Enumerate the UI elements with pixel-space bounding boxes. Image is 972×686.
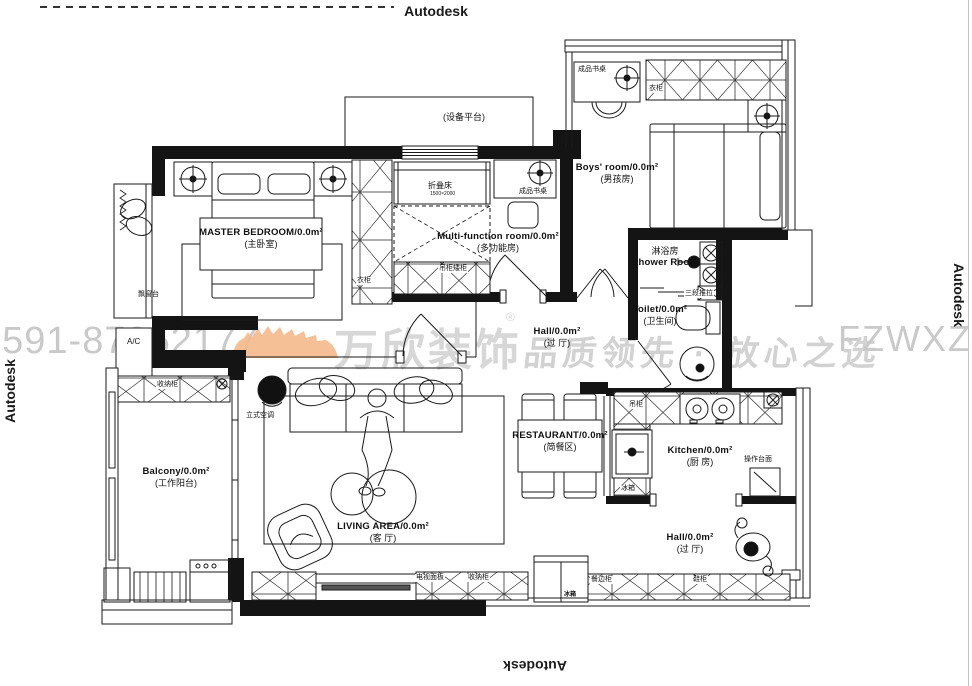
storage-balcony-label: 收纳柜 bbox=[156, 381, 179, 389]
folding-bed-label: 折叠床 bbox=[428, 182, 452, 191]
work-counter-label: 操作台面 bbox=[744, 456, 772, 464]
low-cabinet-label: 吊柜矮柜 bbox=[438, 265, 468, 273]
sideboard-label: 餐边柜 bbox=[590, 576, 613, 584]
floorplan-page: 0591-87952177 万欣装饰 ® 品质领先 · 放心之选 FZWXZS.… bbox=[0, 0, 972, 686]
wardrobe-master-label: 衣柜 bbox=[356, 277, 372, 285]
room-label-living-area: LIVING AREA/0.0m²(客 厅) bbox=[337, 521, 429, 544]
revision-dash-line bbox=[40, 6, 394, 8]
autodesk-watermark-bottom: Autodesk bbox=[499, 658, 571, 674]
desk-boys-label: 成品书桌 bbox=[577, 66, 607, 74]
floorplan-drawing bbox=[0, 0, 972, 686]
room-label-shower-room: 淋浴房Shower Room bbox=[632, 246, 698, 269]
sliding-door-label: 三段推拉 bbox=[684, 290, 714, 298]
room-label-restaurant: RESTAURANT/0.0m²(简餐区) bbox=[512, 430, 607, 453]
standing-ac-label: 立式空调 bbox=[246, 412, 274, 420]
desk-multi-label: 成品书桌 bbox=[518, 188, 548, 196]
tv-panel-label: 电视面板 bbox=[415, 574, 445, 582]
shoe-cabinet-label: 鞋柜 bbox=[692, 576, 708, 584]
room-label-hall-entry: Hall/0.0m²(过 厅) bbox=[667, 532, 714, 555]
autodesk-watermark-left: Autodesk bbox=[2, 355, 18, 427]
room-label-toilet: Toilet/0.0m²(卫生间) bbox=[633, 304, 687, 327]
room-label-equipment-platform: (设备平台) bbox=[443, 112, 485, 123]
room-label-multi-function: Multi-function room/0.0m²(多功能房) bbox=[437, 231, 559, 254]
room-label-boys-room: Boys' room/0.0m²(男孩房) bbox=[576, 162, 659, 185]
wardrobe-boys-label: 衣柜 bbox=[648, 85, 664, 93]
storage-tv-label: 收纳柜 bbox=[467, 574, 490, 582]
autodesk-watermark-top: Autodesk bbox=[400, 3, 472, 19]
autodesk-watermark-right: Autodesk bbox=[951, 259, 967, 331]
bay-window-label: 飘窗台 bbox=[138, 291, 159, 299]
boys-room-furniture bbox=[574, 60, 786, 228]
ac-platform-label: A/C bbox=[127, 338, 140, 347]
person-figure bbox=[735, 518, 773, 576]
folding-bed-size-label: 1500×2000 bbox=[430, 192, 455, 198]
hanging-cabinet-label: 吊柜 bbox=[628, 401, 644, 409]
multi-function-furniture bbox=[394, 160, 556, 294]
fridge-label: 冰箱 bbox=[564, 592, 576, 599]
room-label-balcony: Balcony/0.0m²(工作阳台) bbox=[142, 466, 209, 489]
room-label-hall: Hall/0.0m²(过 厅) bbox=[534, 326, 581, 349]
room-label-master-bedroom: MASTER BEDROOM/0.0m²(主卧室) bbox=[199, 227, 323, 250]
room-label-kitchen: Kitchen/0.0m²(厨 房) bbox=[668, 445, 733, 468]
fridge-kitchen-label: 冰箱 bbox=[620, 485, 636, 493]
